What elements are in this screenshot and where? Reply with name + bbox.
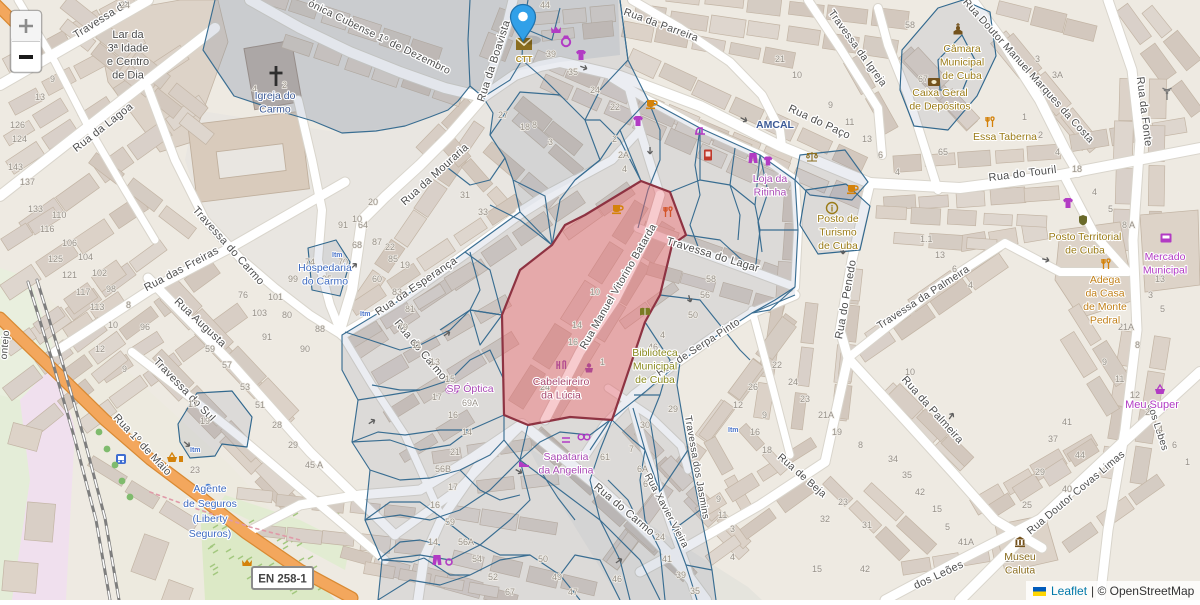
svg-text:16: 16 xyxy=(750,427,760,437)
svg-text:de Cuba: de Cuba xyxy=(1065,245,1105,257)
svg-text:2A: 2A xyxy=(618,150,629,160)
svg-text:Essa Taberna: Essa Taberna xyxy=(973,131,1037,143)
svg-text:143: 143 xyxy=(8,162,23,172)
svg-text:12: 12 xyxy=(733,400,743,410)
svg-text:8 A: 8 A xyxy=(1122,220,1135,230)
svg-text:Loja da: Loja da xyxy=(753,173,788,185)
svg-text:3: 3 xyxy=(1035,54,1040,64)
svg-text:Museu: Museu xyxy=(1004,551,1036,563)
svg-text:65: 65 xyxy=(938,147,948,157)
svg-text:7: 7 xyxy=(629,444,634,454)
svg-text:13: 13 xyxy=(430,357,440,367)
svg-text:Agente: Agente xyxy=(193,483,226,495)
svg-text:40: 40 xyxy=(1062,484,1072,494)
svg-text:4: 4 xyxy=(1055,147,1060,157)
svg-text:59: 59 xyxy=(445,517,455,527)
svg-text:29: 29 xyxy=(1035,467,1045,477)
svg-text:32: 32 xyxy=(820,514,830,524)
svg-text:6: 6 xyxy=(1172,440,1177,450)
svg-text:116: 116 xyxy=(40,224,54,234)
svg-text:Carmo: Carmo xyxy=(259,104,291,116)
svg-text:31: 31 xyxy=(862,520,872,530)
svg-text:CTT: CTT xyxy=(516,54,533,64)
svg-text:28: 28 xyxy=(272,420,282,430)
svg-text:10: 10 xyxy=(352,214,362,224)
svg-text:76: 76 xyxy=(238,290,248,300)
svg-text:37: 37 xyxy=(1048,434,1058,444)
svg-text:103: 103 xyxy=(252,308,267,318)
svg-text:19: 19 xyxy=(200,416,210,426)
svg-text:27: 27 xyxy=(498,110,508,120)
svg-text:35: 35 xyxy=(690,586,700,596)
svg-text:Cabeleireiro: Cabeleireiro xyxy=(533,376,590,388)
svg-text:13: 13 xyxy=(935,250,945,260)
svg-text:16: 16 xyxy=(448,410,458,420)
svg-text:14: 14 xyxy=(572,320,582,330)
svg-text:10: 10 xyxy=(792,70,802,80)
svg-text:102: 102 xyxy=(92,268,107,278)
svg-text:Municipal: Municipal xyxy=(940,57,984,69)
svg-text:22: 22 xyxy=(385,242,395,252)
svg-text:do Carmo: do Carmo xyxy=(302,276,348,288)
svg-text:15: 15 xyxy=(932,504,942,514)
svg-text:24: 24 xyxy=(590,85,600,95)
svg-text:39: 39 xyxy=(676,570,686,580)
svg-text:8: 8 xyxy=(858,440,863,450)
svg-text:51: 51 xyxy=(255,400,265,410)
svg-text:Posto de: Posto de xyxy=(817,213,859,225)
svg-text:54: 54 xyxy=(472,554,482,564)
svg-text:da Casa: da Casa xyxy=(1085,288,1124,300)
svg-text:Lar da: Lar da xyxy=(112,29,144,41)
svg-text:10: 10 xyxy=(108,320,118,330)
svg-text:AMCAL: AMCAL xyxy=(756,119,794,131)
svg-text:44: 44 xyxy=(540,0,550,10)
svg-text:da Angelina: da Angelina xyxy=(539,465,594,477)
svg-text:104: 104 xyxy=(78,252,93,262)
svg-text:9: 9 xyxy=(1102,357,1107,367)
svg-text:Hospedaria: Hospedaria xyxy=(298,262,352,274)
svg-text:21: 21 xyxy=(775,54,785,64)
svg-text:Seguros): Seguros) xyxy=(189,528,232,540)
svg-text:53: 53 xyxy=(240,382,250,392)
svg-text:12: 12 xyxy=(95,344,105,354)
svg-text:16: 16 xyxy=(568,337,578,347)
svg-text:1.1: 1.1 xyxy=(920,234,933,244)
svg-text:9: 9 xyxy=(762,410,767,420)
svg-text:52: 52 xyxy=(488,572,498,582)
svg-text:3: 3 xyxy=(730,524,735,534)
svg-text:9: 9 xyxy=(828,100,833,110)
svg-text:20: 20 xyxy=(368,197,378,207)
svg-text:4: 4 xyxy=(730,552,735,562)
svg-text:124: 124 xyxy=(12,134,27,144)
svg-text:3: 3 xyxy=(1148,290,1153,300)
svg-text:4: 4 xyxy=(895,167,900,177)
svg-text:10: 10 xyxy=(905,367,915,377)
svg-text:126: 126 xyxy=(10,120,25,130)
svg-text:85: 85 xyxy=(388,254,398,264)
svg-text:21A: 21A xyxy=(818,410,834,420)
svg-text:Caixa Geral: Caixa Geral xyxy=(912,87,967,99)
svg-text:59: 59 xyxy=(205,344,215,354)
svg-text:Biblioteca: Biblioteca xyxy=(632,347,678,359)
svg-text:110: 110 xyxy=(52,210,66,220)
svg-text:56B: 56B xyxy=(435,464,451,474)
svg-text:24: 24 xyxy=(788,377,798,387)
svg-text:Leaflet: Leaflet xyxy=(1051,584,1088,598)
svg-text:2: 2 xyxy=(1038,130,1043,140)
svg-text:9: 9 xyxy=(716,494,721,504)
svg-text:Itm: Itm xyxy=(360,311,371,318)
svg-text:15: 15 xyxy=(812,564,822,574)
svg-text:| © OpenStreetMap: | © OpenStreetMap xyxy=(1091,584,1195,598)
svg-text:da Lúcia: da Lúcia xyxy=(541,390,581,402)
svg-text:8: 8 xyxy=(532,120,537,130)
svg-text:Ritinha: Ritinha xyxy=(754,187,787,199)
svg-text:101: 101 xyxy=(268,292,283,302)
svg-text:Câmara: Câmara xyxy=(943,43,981,55)
svg-text:Caluta: Caluta xyxy=(1005,565,1036,577)
svg-text:de Dia: de Dia xyxy=(112,70,145,82)
svg-text:(Liberty: (Liberty xyxy=(192,513,228,525)
svg-text:de Cuba: de Cuba xyxy=(942,70,982,82)
svg-text:18: 18 xyxy=(520,122,530,132)
svg-text:22: 22 xyxy=(610,102,620,112)
svg-text:35: 35 xyxy=(568,67,578,77)
svg-text:67: 67 xyxy=(918,74,928,84)
svg-text:Municipal: Municipal xyxy=(1143,265,1187,277)
svg-text:90: 90 xyxy=(300,344,310,354)
svg-text:22: 22 xyxy=(772,360,782,370)
svg-text:11: 11 xyxy=(1115,374,1124,384)
svg-text:8: 8 xyxy=(1135,340,1140,350)
svg-text:68: 68 xyxy=(352,240,362,250)
svg-text:11: 11 xyxy=(718,510,727,520)
svg-text:6: 6 xyxy=(878,150,883,160)
svg-text:19: 19 xyxy=(832,427,842,437)
svg-text:31: 31 xyxy=(460,190,470,200)
svg-text:i: i xyxy=(831,204,834,214)
svg-text:56A: 56A xyxy=(458,537,474,547)
svg-text:de Cuba: de Cuba xyxy=(635,374,675,386)
svg-text:61: 61 xyxy=(600,452,610,462)
svg-text:24: 24 xyxy=(120,0,130,10)
svg-text:1: 1 xyxy=(600,357,605,367)
svg-text:de Monte: de Monte xyxy=(1083,301,1127,313)
svg-text:5: 5 xyxy=(1160,304,1165,314)
svg-text:42: 42 xyxy=(860,564,870,574)
svg-text:Mercado: Mercado xyxy=(1145,251,1186,263)
svg-text:133: 133 xyxy=(28,204,43,214)
svg-text:25: 25 xyxy=(1022,500,1032,510)
svg-text:14: 14 xyxy=(462,427,472,437)
svg-text:de Cuba: de Cuba xyxy=(818,240,858,252)
svg-text:14: 14 xyxy=(428,537,438,547)
svg-text:30: 30 xyxy=(640,420,650,430)
svg-text:Igreja do: Igreja do xyxy=(255,90,296,102)
svg-text:5: 5 xyxy=(1108,204,1113,214)
svg-text:35: 35 xyxy=(902,470,912,480)
svg-text:Posto Territorial: Posto Territorial xyxy=(1049,231,1122,243)
svg-text:96: 96 xyxy=(140,322,150,332)
svg-text:Itm: Itm xyxy=(190,447,201,454)
svg-text:23: 23 xyxy=(838,497,848,507)
svg-text:50: 50 xyxy=(688,310,698,320)
svg-text:57: 57 xyxy=(222,360,232,370)
svg-text:125: 125 xyxy=(48,254,63,264)
svg-text:69A: 69A xyxy=(462,398,478,408)
svg-text:99: 99 xyxy=(288,274,298,284)
svg-text:41A: 41A xyxy=(958,537,974,547)
svg-text:46: 46 xyxy=(612,574,622,584)
svg-text:29: 29 xyxy=(668,404,678,414)
svg-text:Municipal: Municipal xyxy=(633,361,677,373)
svg-text:50: 50 xyxy=(538,554,548,564)
svg-text:79: 79 xyxy=(398,322,408,332)
svg-text:58: 58 xyxy=(706,274,716,284)
svg-text:6A: 6A xyxy=(637,464,648,474)
svg-text:Meu Super: Meu Super xyxy=(1125,399,1179,411)
svg-text:80: 80 xyxy=(282,310,292,320)
svg-text:Itm: Itm xyxy=(728,427,739,434)
svg-text:47: 47 xyxy=(568,587,578,597)
svg-text:81: 81 xyxy=(405,304,415,314)
svg-text:5: 5 xyxy=(945,522,950,532)
svg-text:17: 17 xyxy=(188,399,198,409)
svg-text:Itm: Itm xyxy=(332,252,343,259)
svg-text:23: 23 xyxy=(800,394,810,404)
svg-text:13: 13 xyxy=(862,134,872,144)
svg-text:41: 41 xyxy=(1062,417,1072,427)
svg-text:137: 137 xyxy=(20,177,35,187)
svg-text:de Seguros: de Seguros xyxy=(183,498,237,510)
svg-text:4: 4 xyxy=(660,330,665,340)
svg-text:60: 60 xyxy=(372,274,382,284)
svg-text:17: 17 xyxy=(448,482,458,492)
svg-text:44: 44 xyxy=(1075,450,1085,460)
svg-text:42: 42 xyxy=(915,487,925,497)
svg-text:21: 21 xyxy=(450,447,460,457)
svg-text:1: 1 xyxy=(1022,112,1027,122)
svg-text:8: 8 xyxy=(126,300,131,310)
svg-text:9: 9 xyxy=(122,364,127,374)
svg-text:18: 18 xyxy=(1072,164,1082,174)
svg-text:21A: 21A xyxy=(1118,322,1134,332)
svg-text:16: 16 xyxy=(430,500,440,510)
svg-text:18: 18 xyxy=(762,445,772,455)
svg-text:106: 106 xyxy=(62,238,77,248)
svg-text:34: 34 xyxy=(888,454,898,464)
svg-text:56: 56 xyxy=(700,290,710,300)
svg-text:45 A: 45 A xyxy=(305,460,323,470)
svg-text:10: 10 xyxy=(590,287,600,297)
svg-text:24: 24 xyxy=(655,532,665,542)
svg-text:3ª Idade: 3ª Idade xyxy=(108,43,149,55)
svg-text:39: 39 xyxy=(546,49,556,59)
svg-text:87: 87 xyxy=(372,237,382,247)
svg-text:EN 258-1: EN 258-1 xyxy=(258,574,307,586)
svg-text:1: 1 xyxy=(1185,457,1190,467)
svg-text:SP Óptica: SP Óptica xyxy=(446,382,493,395)
svg-text:Sapataria: Sapataria xyxy=(544,451,589,463)
svg-text:17: 17 xyxy=(432,392,442,402)
svg-text:6: 6 xyxy=(952,264,957,274)
svg-text:67: 67 xyxy=(505,587,515,597)
svg-text:2: 2 xyxy=(612,134,617,144)
svg-text:3: 3 xyxy=(548,137,553,147)
svg-text:23: 23 xyxy=(190,465,200,475)
svg-text:2: 2 xyxy=(282,80,287,90)
svg-text:98: 98 xyxy=(106,284,116,294)
svg-text:19: 19 xyxy=(400,260,410,270)
svg-text:33: 33 xyxy=(478,207,488,217)
svg-text:13: 13 xyxy=(35,92,45,102)
svg-text:49: 49 xyxy=(552,572,562,582)
svg-text:6: 6 xyxy=(643,479,648,489)
svg-text:e Centro: e Centro xyxy=(107,56,149,68)
svg-text:41: 41 xyxy=(662,554,672,564)
svg-text:4: 4 xyxy=(1158,424,1163,434)
svg-text:91: 91 xyxy=(262,332,272,342)
svg-text:4: 4 xyxy=(622,164,627,174)
svg-text:11: 11 xyxy=(845,117,854,127)
svg-text:de Depósitos: de Depósitos xyxy=(909,101,970,113)
svg-text:121: 121 xyxy=(62,270,77,280)
svg-text:4: 4 xyxy=(968,280,973,290)
svg-text:113: 113 xyxy=(90,302,104,312)
svg-text:26: 26 xyxy=(748,382,758,392)
svg-text:3A: 3A xyxy=(1052,70,1063,80)
svg-text:Adega: Adega xyxy=(1090,274,1121,286)
svg-text:29: 29 xyxy=(288,440,298,450)
svg-text:91: 91 xyxy=(338,220,348,230)
svg-text:58: 58 xyxy=(905,20,915,30)
svg-text:4: 4 xyxy=(1092,187,1097,197)
svg-text:Pedral: Pedral xyxy=(1090,315,1120,327)
svg-text:9: 9 xyxy=(50,74,55,84)
svg-text:117: 117 xyxy=(76,287,90,297)
svg-text:Turismo: Turismo xyxy=(819,227,857,239)
svg-text:11: 11 xyxy=(412,340,421,350)
svg-text:83: 83 xyxy=(392,287,402,297)
svg-text:88: 88 xyxy=(315,324,325,334)
